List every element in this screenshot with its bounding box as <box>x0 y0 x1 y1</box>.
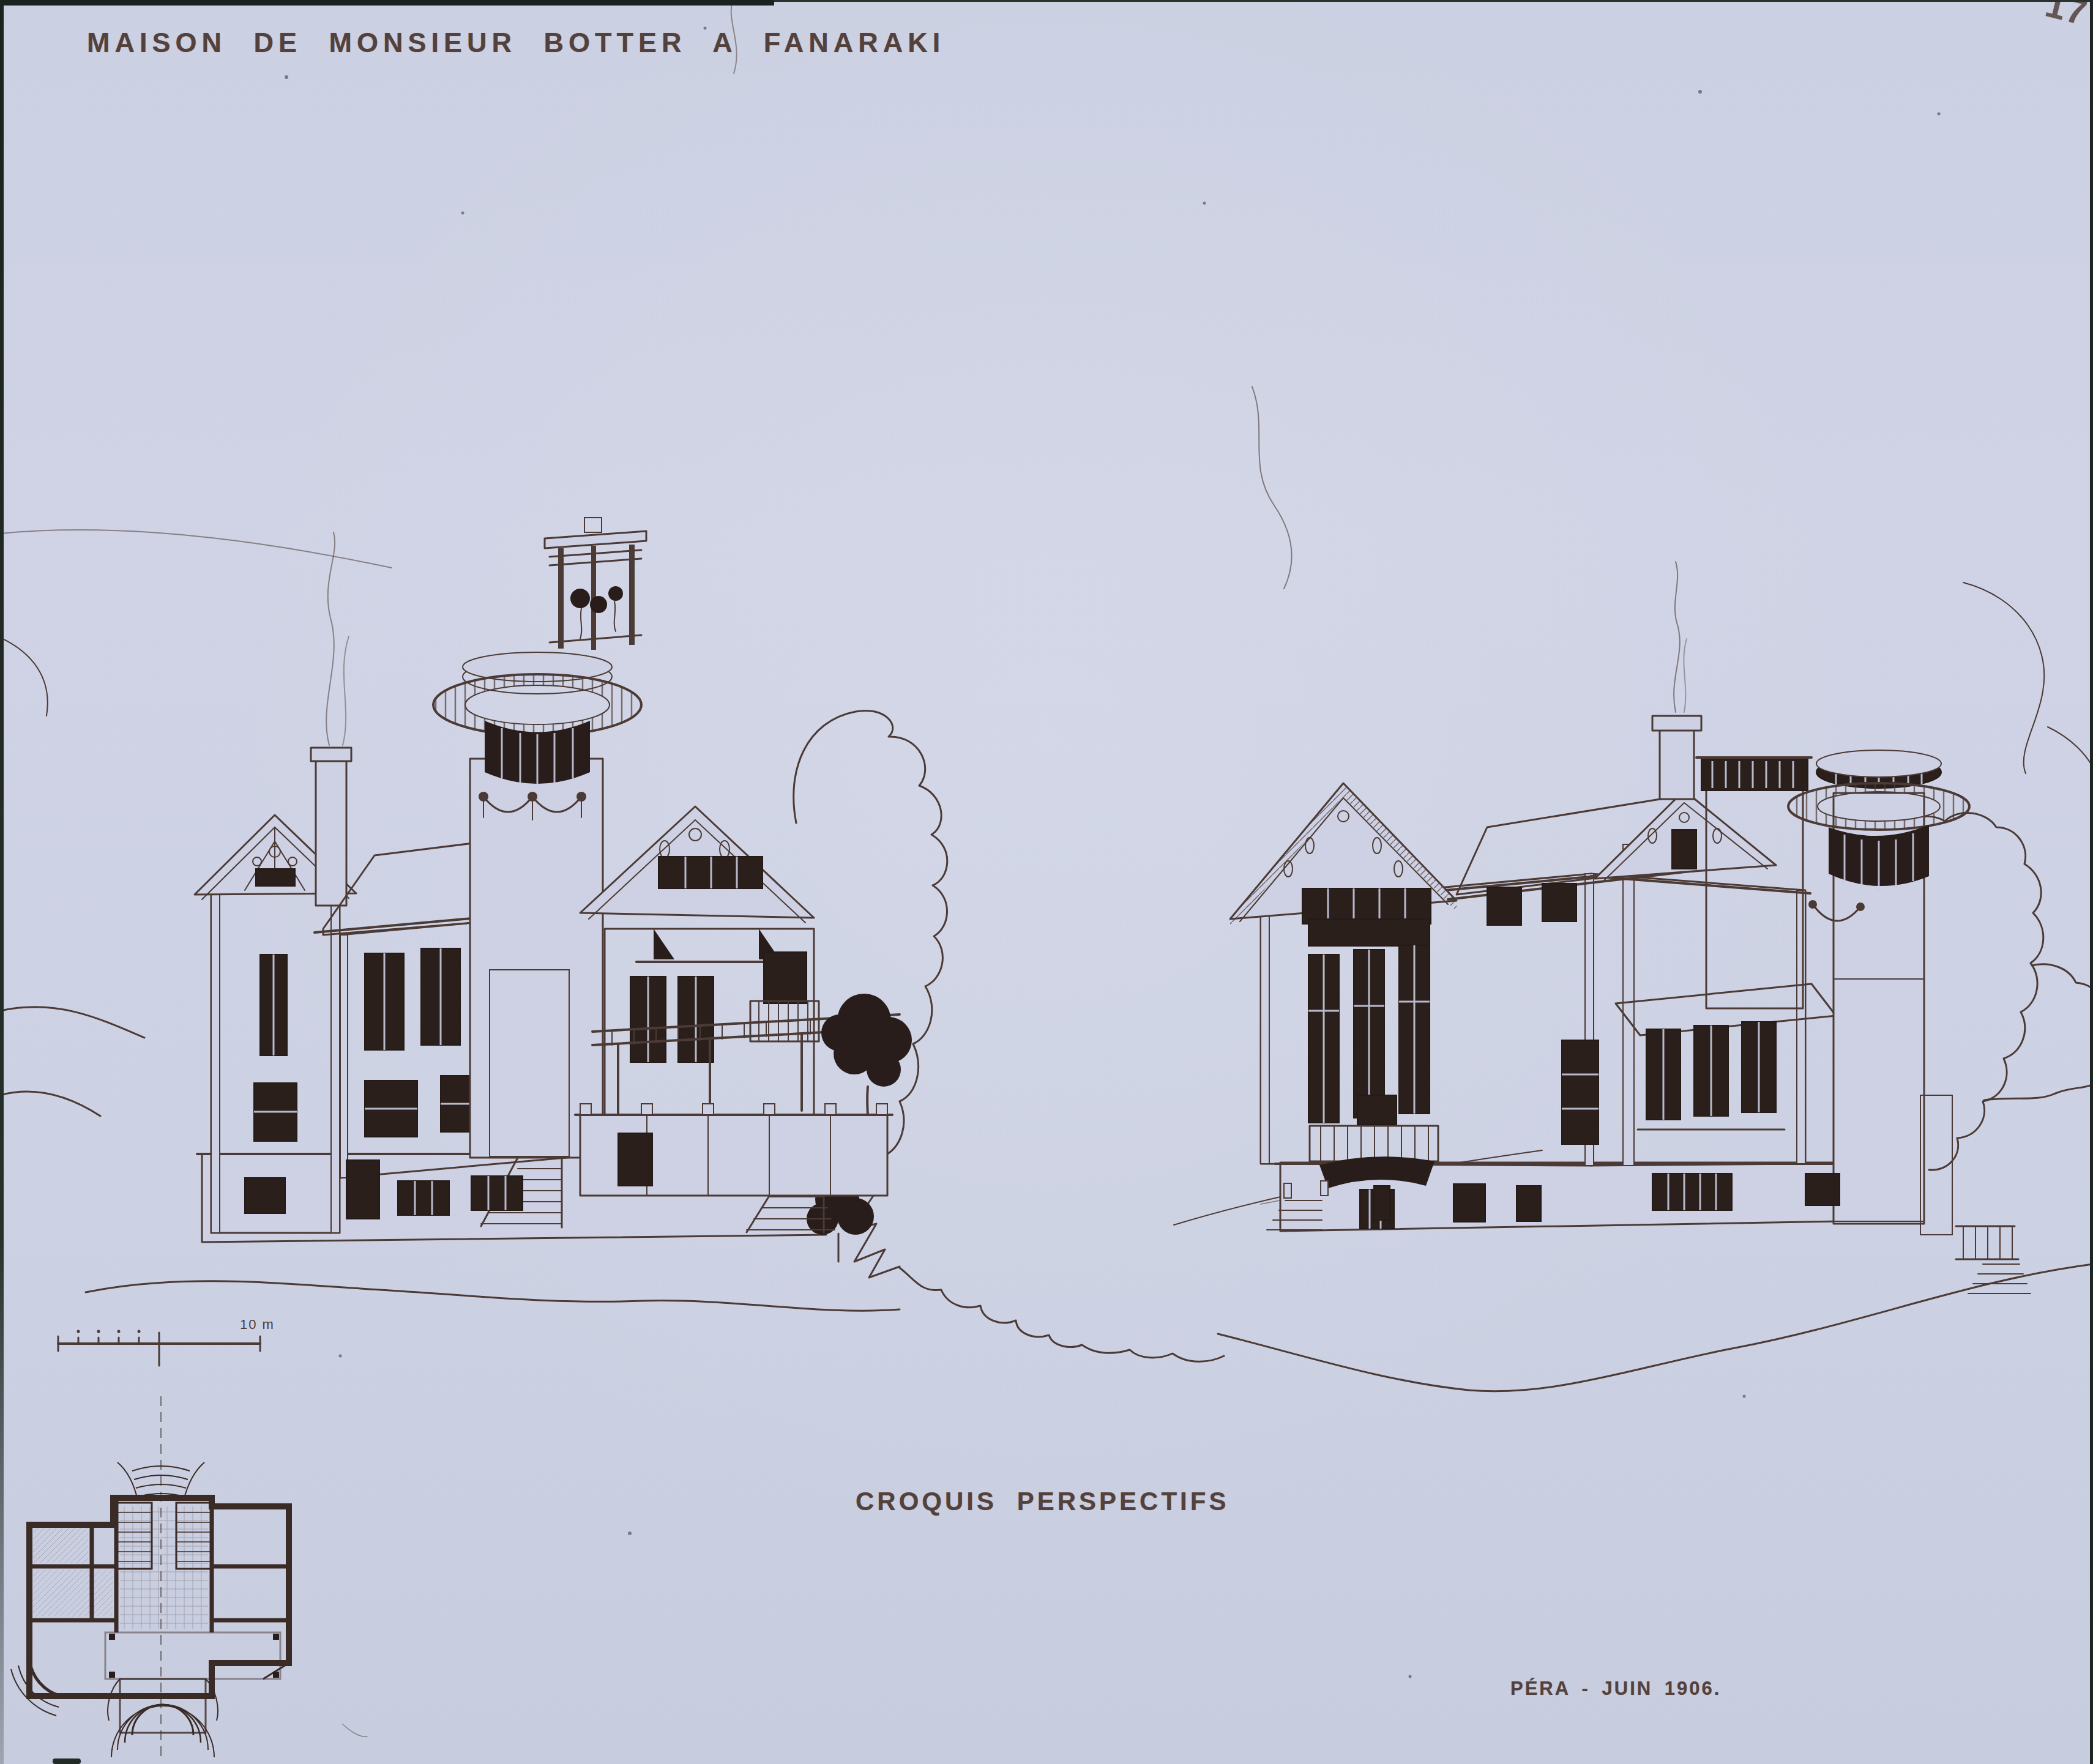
round-tower-rear <box>1788 750 1969 1224</box>
belvedere <box>545 518 646 650</box>
signature-date: PÉRA - JUIN 1906. <box>1510 1678 1721 1700</box>
left-house-right-wing <box>580 806 819 1154</box>
scale-bar-label: 10 m <box>240 1317 275 1332</box>
terrace <box>575 1104 892 1196</box>
scan-edge-left <box>0 0 4 1764</box>
scan-edge-top <box>0 0 774 6</box>
right-house-side-details <box>1920 1095 2031 1293</box>
scale-bar: 10 m <box>58 1317 275 1366</box>
drawing-sheet: 10 m MAISON DE MONSIEUR BOTTER A FANARAK… <box>0 0 2093 1764</box>
perspective-caption: CROQUIS PERSPECTIFS <box>856 1487 1229 1516</box>
right-perspective-sketch <box>1230 562 2031 1293</box>
sheet-title: MAISON DE MONSIEUR BOTTER A FANARAKI <box>87 27 945 59</box>
left-house-chimney <box>311 532 351 906</box>
scan-edge-right <box>2090 0 2093 1764</box>
right-house-chimney <box>1652 562 1701 799</box>
scan-edge-bottom-nub <box>53 1758 81 1764</box>
left-perspective-sketch <box>195 518 912 1262</box>
ground-floor-plan <box>11 1396 289 1762</box>
right-house-left-gable <box>1230 783 1457 930</box>
right-house-cross-gable <box>1595 791 1776 881</box>
